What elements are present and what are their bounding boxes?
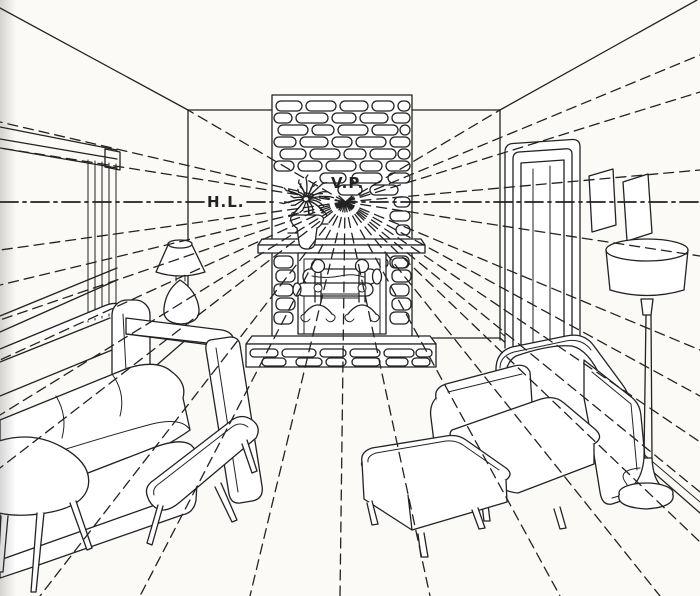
armchair-leg [554, 507, 566, 529]
drawing-canvas: H.L. V.P. [0, 0, 700, 596]
fireplace [246, 95, 436, 367]
one-point-perspective-room-drawing: H.L. V.P. [0, 0, 700, 596]
fireplace-logs [293, 269, 382, 296]
picture-frames [589, 169, 652, 241]
horizon-label: H.L. [207, 193, 245, 211]
table-lamp [156, 240, 205, 324]
vanishing-point-label: V.P. [331, 174, 364, 192]
ottoman-leg [418, 533, 428, 557]
picture-frame-2 [623, 174, 652, 241]
table-lamp-shade [156, 245, 205, 276]
